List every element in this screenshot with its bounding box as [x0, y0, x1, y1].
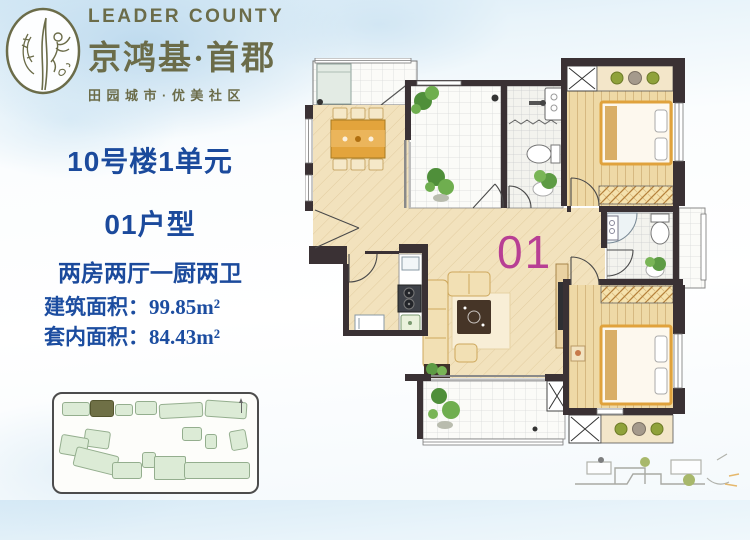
building-footprint [184, 462, 250, 479]
built-area-line: 建筑面积：99.85m² [44, 291, 304, 321]
unit-type-title: 01户型 [0, 203, 300, 243]
inner-area-label: 套内面积： [44, 325, 149, 349]
brand-tagline: 田园城市·优美社区 [88, 85, 300, 104]
info-panel: LEADER COUNTY 京鸿基·首郡 田园城市·优美社区 10号楼1单元 0… [0, 0, 302, 500]
building-footprint [205, 434, 217, 449]
kitchen [349, 253, 422, 332]
inner-area-value: 84.43m² [149, 325, 220, 349]
building-footprint [112, 462, 142, 479]
building-footprint [135, 401, 157, 415]
building-footprint-highlighted [90, 400, 114, 417]
built-area-label: 建筑面积： [44, 295, 149, 319]
building-footprint [62, 402, 90, 416]
brand-name-cn: 京鸿基·首郡 [88, 31, 300, 79]
unit-number-text: 01 [497, 226, 552, 278]
brand-name-en: LEADER COUNTY [88, 6, 300, 28]
building-footprint-gate [154, 456, 186, 480]
floorplan: 01 [305, 58, 745, 498]
brand-logo: LEADER COUNTY 京鸿基·首郡 田园城市·优美社区 [2, 2, 300, 114]
bathroom-master [607, 213, 673, 279]
building-footprint [115, 404, 133, 416]
building-footprint [159, 402, 204, 419]
decor-sketch [575, 454, 739, 486]
bedroom-second [567, 66, 673, 206]
inner-area-line: 套内面积：84.43m² [44, 321, 304, 351]
bathroom-shared [507, 86, 563, 208]
dining-room [313, 105, 409, 264]
built-area-value: 99.85m² [149, 295, 220, 319]
building-footprint [228, 429, 248, 452]
balcony-laundry [313, 61, 417, 105]
compass-icon [237, 398, 247, 414]
bedroom-master [569, 285, 673, 443]
room-config-text: 两房两厅一厨两卫 [0, 254, 300, 288]
site-plan-map [52, 392, 259, 494]
unit-number-label: 01 [497, 226, 552, 278]
building-title: 10号楼1单元 [0, 140, 300, 180]
balcony-south [423, 381, 567, 439]
building-footprint [182, 427, 202, 441]
garden-terrace [409, 86, 501, 208]
brand-emblem-icon [4, 4, 86, 98]
